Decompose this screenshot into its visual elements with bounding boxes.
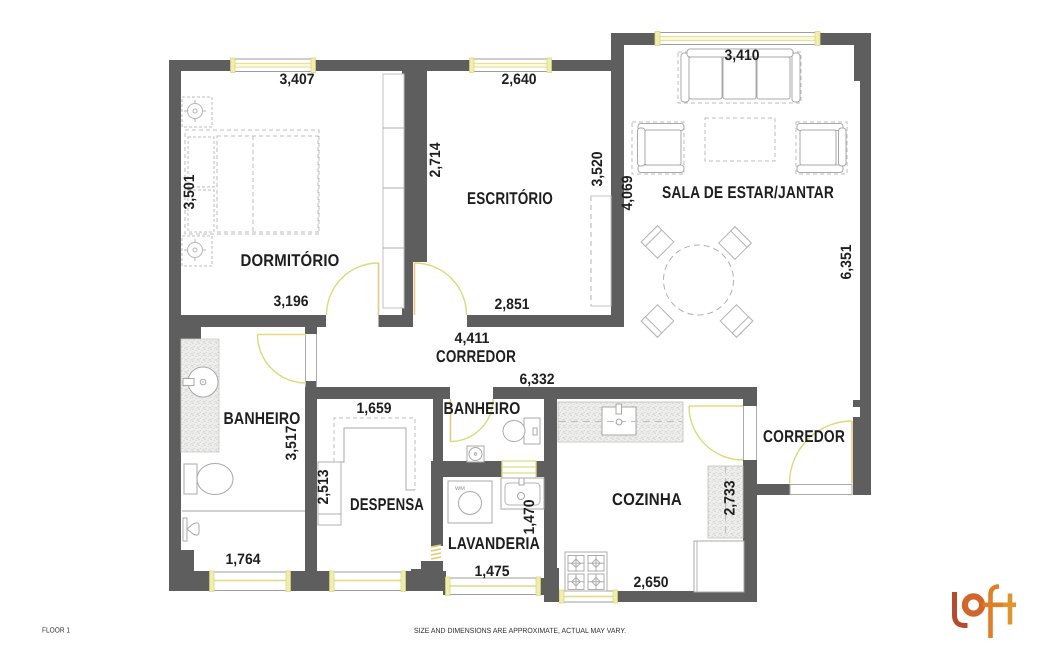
svg-text:FLOOR 1: FLOOR 1 bbox=[42, 626, 70, 635]
svg-text:ESCRITÓRIO: ESCRITÓRIO bbox=[467, 188, 553, 208]
svg-text:1,470: 1,470 bbox=[521, 500, 538, 535]
svg-text:4,411: 4,411 bbox=[455, 330, 490, 347]
svg-text:BANHEIRO: BANHEIRO bbox=[224, 409, 301, 428]
svg-text:3,196: 3,196 bbox=[274, 293, 309, 310]
svg-text:1,659: 1,659 bbox=[357, 400, 392, 417]
svg-text:1,475: 1,475 bbox=[475, 563, 510, 580]
svg-text:6,332: 6,332 bbox=[520, 371, 555, 388]
svg-text:2,640: 2,640 bbox=[502, 71, 537, 88]
svg-text:COZINHA: COZINHA bbox=[612, 490, 682, 509]
svg-text:CORREDOR: CORREDOR bbox=[436, 347, 516, 366]
svg-text:3,407: 3,407 bbox=[280, 71, 315, 88]
svg-text:3,410: 3,410 bbox=[725, 47, 760, 64]
svg-text:2,714: 2,714 bbox=[427, 142, 444, 178]
svg-text:2,851: 2,851 bbox=[495, 296, 530, 313]
svg-text:3,520: 3,520 bbox=[589, 152, 606, 187]
svg-text:BANHEIRO: BANHEIRO bbox=[444, 399, 521, 418]
svg-text:SIZE AND DIMENSIONS ARE APPROX: SIZE AND DIMENSIONS ARE APPROXIMATE, ACT… bbox=[414, 626, 626, 635]
svg-text:2,733: 2,733 bbox=[722, 481, 739, 516]
svg-text:4,069: 4,069 bbox=[619, 176, 636, 211]
svg-text:CORREDOR: CORREDOR bbox=[763, 427, 845, 446]
svg-text:WM: WM bbox=[455, 486, 465, 492]
svg-text:DORMITÓRIO: DORMITÓRIO bbox=[241, 250, 340, 270]
svg-text:3,501: 3,501 bbox=[181, 175, 198, 210]
svg-text:3,517: 3,517 bbox=[283, 426, 300, 461]
svg-text:2,650: 2,650 bbox=[634, 574, 669, 591]
svg-text:DESPENSA: DESPENSA bbox=[350, 495, 424, 514]
svg-text:LAVANDERIA: LAVANDERIA bbox=[448, 534, 540, 553]
svg-text:1,764: 1,764 bbox=[226, 551, 262, 568]
svg-text:SALA DE ESTAR/JANTAR: SALA DE ESTAR/JANTAR bbox=[662, 183, 834, 202]
svg-text:6,351: 6,351 bbox=[838, 245, 855, 280]
svg-text:2,513: 2,513 bbox=[315, 470, 332, 505]
